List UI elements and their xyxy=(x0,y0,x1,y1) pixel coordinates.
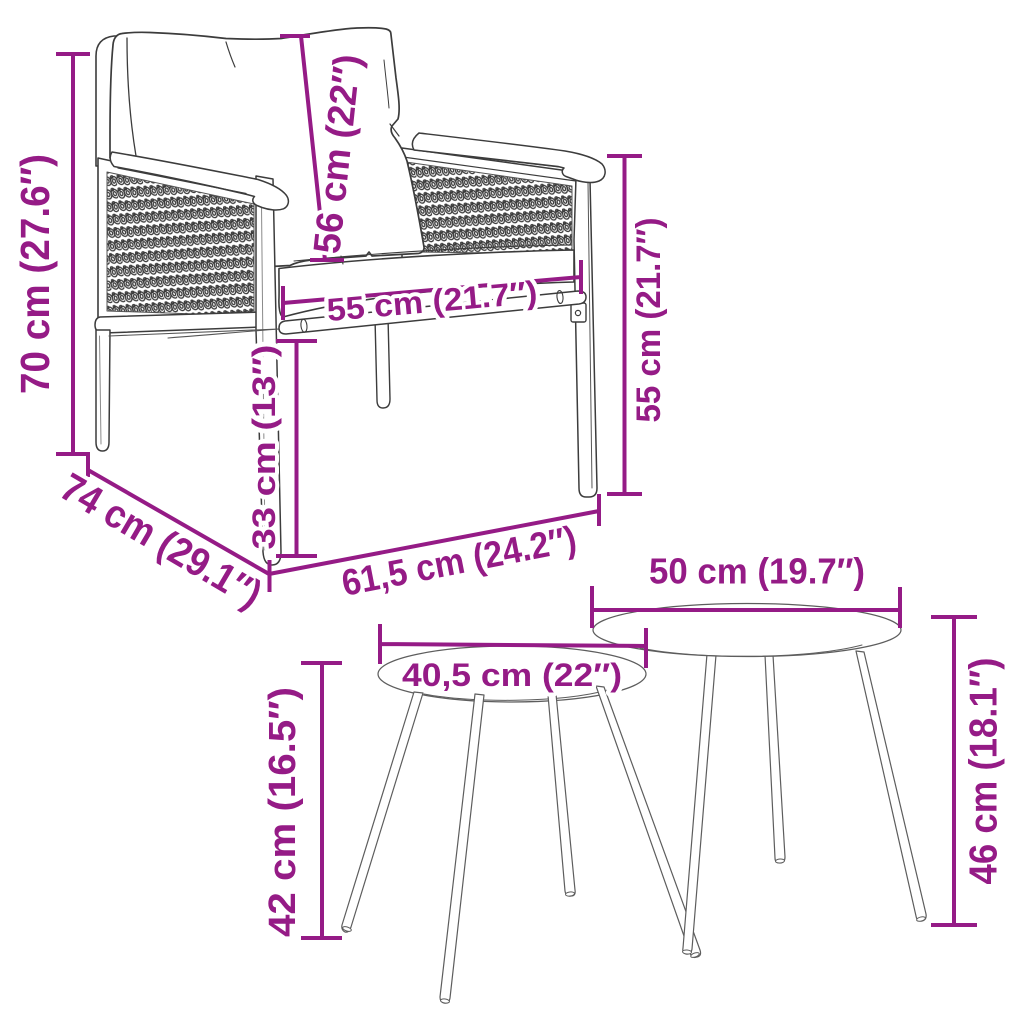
svg-text:33 cm (13″): 33 cm (13″) xyxy=(246,345,282,550)
svg-text:70 cm (27.6″): 70 cm (27.6″) xyxy=(12,154,58,394)
svg-text:40,5 cm (22″): 40,5 cm (22″) xyxy=(402,657,622,693)
svg-text:46 cm (18.1″): 46 cm (18.1″) xyxy=(963,658,1006,885)
svg-text:42 cm (16.5″): 42 cm (16.5″) xyxy=(262,687,304,937)
svg-text:55 cm (21.7″): 55 cm (21.7″) xyxy=(630,218,668,423)
svg-text:50 cm (19.7″): 50 cm (19.7″) xyxy=(649,551,865,592)
